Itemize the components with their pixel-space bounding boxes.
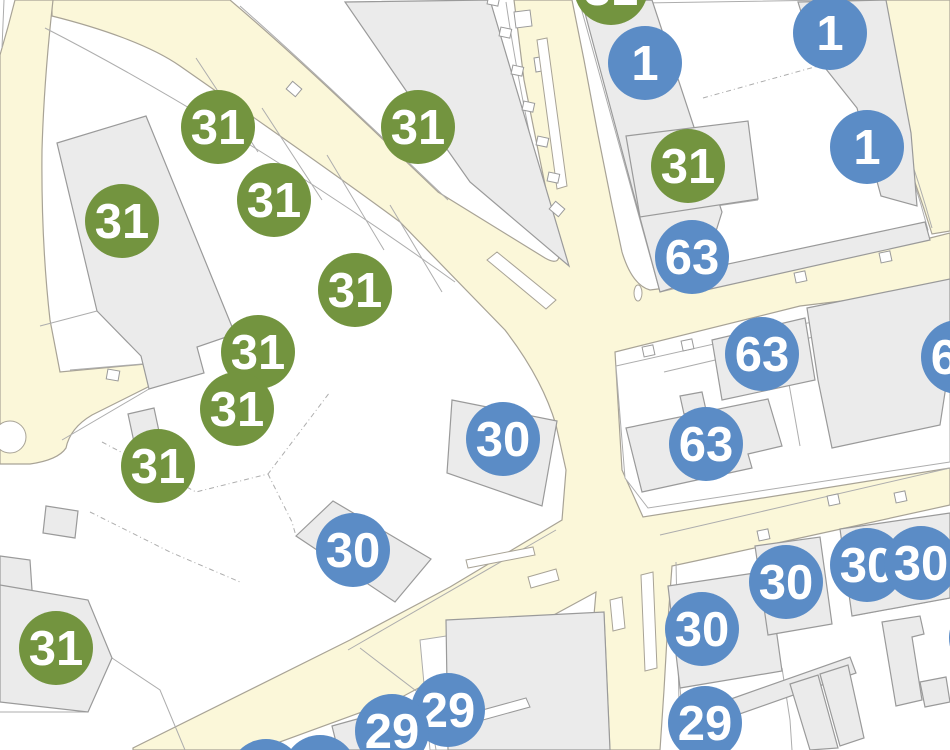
- parcel-line-dashed: [90, 512, 240, 582]
- marker-label: 1: [631, 37, 658, 91]
- map-marker-31[interactable]: 31: [651, 129, 725, 203]
- marker-label: 63: [735, 328, 790, 382]
- map-marker-31[interactable]: 31: [200, 372, 274, 446]
- marker-label: 31: [210, 383, 265, 437]
- entrance-symbol: [757, 529, 770, 541]
- marker-label: 31: [191, 101, 246, 155]
- marker-label: 30: [476, 413, 531, 467]
- marker-label: 31: [95, 195, 150, 249]
- marker-label: 31: [328, 264, 383, 318]
- entrance-symbol: [536, 136, 549, 147]
- median-strip: [610, 597, 625, 631]
- map-marker-31[interactable]: 31: [181, 90, 255, 164]
- entrance-symbol: [879, 251, 892, 263]
- map-marker-31[interactable]: 31: [85, 184, 159, 258]
- building: [920, 677, 950, 707]
- map-marker-31[interactable]: 31: [121, 429, 195, 503]
- map-marker-63[interactable]: 63: [669, 407, 743, 481]
- marker-label: 1: [853, 121, 880, 175]
- map-marker-31[interactable]: 31: [381, 90, 455, 164]
- entrance-symbol: [681, 339, 694, 351]
- building: [43, 506, 78, 538]
- marker-label: 30: [675, 603, 730, 657]
- road-island: [634, 285, 642, 301]
- map-canvas: 3131313131313131313131111636363633030303…: [0, 0, 950, 750]
- entrance-symbol: [827, 494, 840, 506]
- entrance-symbol: [894, 491, 907, 503]
- entrance-symbol: [547, 172, 560, 183]
- building-inset: [514, 10, 532, 28]
- marker-label: 30: [326, 524, 381, 578]
- map-marker-30[interactable]: 30: [749, 545, 823, 619]
- parcel-line-dashed: [268, 474, 296, 536]
- marker-label: 31: [29, 622, 84, 676]
- map-marker-31[interactable]: 31: [318, 253, 392, 327]
- marker-label: 1: [816, 7, 843, 61]
- marker-label: 30: [293, 746, 348, 750]
- marker-label: 31: [584, 0, 639, 16]
- entrance-symbol: [511, 65, 524, 76]
- marker-label: 30: [894, 537, 949, 591]
- marker-label: 29: [365, 705, 420, 750]
- map-marker-31[interactable]: 31: [237, 163, 311, 237]
- map-marker-30[interactable]: 30: [466, 402, 540, 476]
- entrance-symbol: [794, 271, 807, 283]
- map-marker-31[interactable]: 31: [19, 611, 93, 685]
- marker-label: 31: [231, 326, 286, 380]
- map-marker-30[interactable]: 30: [665, 592, 739, 666]
- entrance-symbol: [522, 101, 535, 112]
- marker-label: 30: [759, 556, 814, 610]
- map-marker-1[interactable]: 1: [608, 26, 682, 100]
- map-marker-63[interactable]: 63: [655, 220, 729, 294]
- marker-label: 31: [131, 440, 186, 494]
- marker-label: 63: [931, 331, 950, 385]
- building: [882, 616, 924, 706]
- map-marker-30[interactable]: 30: [884, 526, 950, 600]
- map-marker-30[interactable]: 30: [316, 513, 390, 587]
- marker-label: 29: [678, 697, 733, 750]
- marker-label: 31: [661, 140, 716, 194]
- marker-label: 31: [247, 174, 302, 228]
- marker-label: 63: [665, 231, 720, 285]
- culdesac-island: [0, 421, 26, 453]
- entrance-symbol: [642, 345, 655, 357]
- marker-label: 31: [391, 101, 446, 155]
- marker-label: 63: [679, 418, 734, 472]
- entrance-symbol: [106, 369, 120, 381]
- entrance-symbol: [499, 27, 512, 38]
- map-marker-1[interactable]: 1: [830, 110, 904, 184]
- map-marker-63[interactable]: 63: [725, 317, 799, 391]
